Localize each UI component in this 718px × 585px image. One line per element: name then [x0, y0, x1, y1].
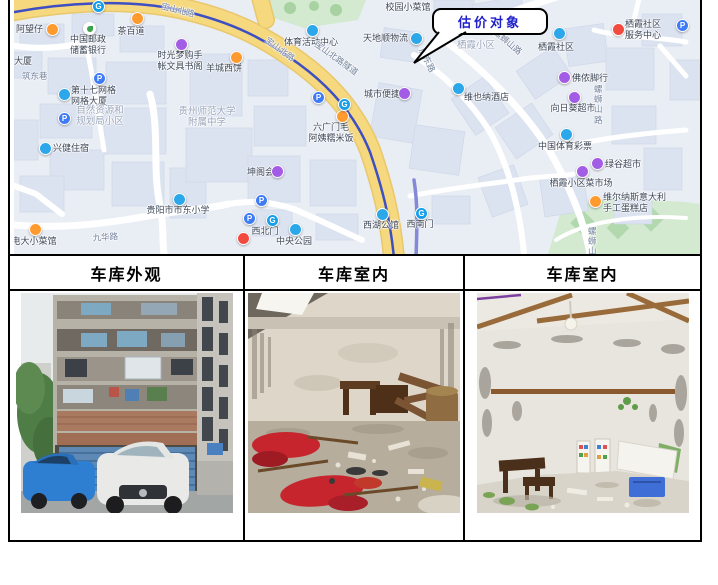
map-label: 服东路 [417, 47, 437, 74]
blue-map-icon [452, 82, 465, 95]
parking-map-icon: P [93, 72, 106, 85]
metro-map-icon: G [92, 0, 105, 13]
header-garage-interior-2: 车库室内 [465, 256, 700, 289]
orange-map-icon [589, 195, 602, 208]
metro-map-icon: G [266, 214, 279, 227]
map-label: 兴健住宿 [53, 143, 89, 154]
blue-map-icon [410, 32, 423, 45]
map-label: 贵阳市市东小学 [146, 205, 209, 216]
blue-map-icon [289, 223, 302, 236]
map-label: 城市便捷 [364, 89, 400, 100]
blue-map-icon [376, 208, 389, 221]
photo-cell-1 [10, 291, 243, 540]
parking-map-icon: P [58, 112, 71, 125]
map-markers: G宝山北路阿望仔茶百道中国邮政 储蓄银行时光梦购手 帐文具书阁羊城西饼大厦筑东巷… [14, 0, 700, 254]
orange-map-icon [336, 110, 349, 123]
map-label: 坤阁会 [247, 167, 274, 178]
photo-cell-3 [465, 291, 700, 540]
map-label: 栖霞小区 [457, 40, 495, 51]
map-label: 栖霞小区菜市场 [549, 178, 612, 189]
map-label: 六广门毛 阿姨糯米饭 [308, 122, 353, 144]
parking-map-icon: P [243, 212, 256, 225]
header-garage-exterior: 车库外观 [10, 256, 243, 289]
header-garage-interior-1: 车库室内 [243, 256, 465, 289]
map-label: 栖霞社区 [538, 42, 574, 53]
parking-map-icon: P [676, 19, 689, 32]
orange-map-icon [46, 23, 59, 36]
map-label: 第十七网格 网格大厦 [71, 85, 116, 107]
map-label: 维尔纳斯意大利 手工蛋糕店 [603, 192, 666, 214]
map-label: 自然资源和 规划局小区 [76, 105, 124, 128]
map-label: 校园小菜馆 [385, 2, 430, 13]
document-page: G宝山北路阿望仔茶百道中国邮政 储蓄银行时光梦购手 帐文具书阁羊城西饼大厦筑东巷… [0, 0, 718, 585]
garage-interior-photo-1[interactable] [248, 293, 460, 513]
blue-map-icon [39, 142, 52, 155]
map-label: 中央公园 [276, 236, 312, 247]
red-map-icon [612, 23, 625, 36]
blue-map-icon [173, 193, 186, 206]
photo-row [10, 291, 700, 540]
table-header-row: 车库外观 车库室内 车库室内 [10, 254, 700, 291]
photo-cell-2 [243, 291, 465, 540]
map-label: 茶百道 [117, 26, 144, 37]
map-label: 螺 蛳 山 [588, 226, 597, 254]
blue-map-icon [553, 27, 566, 40]
map-label: 大厦 [14, 56, 32, 67]
map-label: 向日葵超市 [550, 103, 595, 114]
photo-table: G宝山北路阿望仔茶百道中国邮政 储蓄银行时光梦购手 帐文具书阁羊城西饼大厦筑东巷… [8, 0, 702, 542]
metro-map-icon: G [415, 207, 428, 220]
appraisal-object-callout[interactable]: 估价对象 [432, 8, 548, 35]
map-label: 时光梦购手 帐文具书阁 [157, 50, 202, 72]
map-label: 西南门 [406, 219, 433, 230]
purple-map-icon [271, 165, 284, 178]
map-label: 九华路 [92, 231, 118, 243]
map-label: 维也纳酒店 [464, 92, 509, 103]
map-label: 西湖公馆 [363, 220, 399, 231]
map-label: 中国邮政 储蓄银行 [70, 34, 106, 56]
blue-map-icon [560, 128, 573, 141]
purple-map-icon [558, 71, 571, 84]
map-label: 阿望仔 [16, 24, 43, 35]
parking-map-icon: P [255, 194, 268, 207]
orange-map-icon [131, 12, 144, 25]
parking-map-icon: P [312, 91, 325, 104]
metro-map-icon: G [338, 98, 351, 111]
red-map-icon [237, 232, 250, 245]
map-label: 西北门 [251, 226, 278, 237]
map-label: 中国体育彩票 [538, 141, 592, 152]
map-label: 电大小菜馆 [14, 236, 57, 247]
map-label: 贵州师范大学 附属中学 [178, 106, 235, 129]
map-row: G宝山北路阿望仔茶百道中国邮政 储蓄银行时光梦购手 帐文具书阁羊城西饼大厦筑东巷… [10, 0, 700, 254]
purple-map-icon [175, 38, 188, 51]
purple-map-icon [568, 91, 581, 104]
garage-interior-photo-2[interactable] [477, 293, 689, 513]
map-label: 绿谷超市 [605, 159, 641, 170]
purple-map-icon [398, 87, 411, 100]
purple-map-icon [591, 157, 604, 170]
map-label: 天地顺物流 [363, 33, 408, 44]
purple-map-icon [576, 165, 589, 178]
blue-map-icon [306, 24, 319, 37]
orange-map-icon [230, 51, 243, 64]
garage-exterior-photo[interactable] [16, 293, 238, 513]
blue-map-icon [58, 88, 71, 101]
map-label: 佛侬脚行 [572, 73, 608, 84]
map-label: 筑东巷 [22, 71, 48, 81]
orange-map-icon [29, 223, 42, 236]
leaf-map-icon [83, 22, 96, 35]
map-label: 栖霞社区 服务中心 [625, 19, 661, 41]
map-label: 羊城西饼 [206, 63, 242, 74]
map-label: 螺 蛳 山 路 [594, 84, 603, 125]
map-label: 宝山北路 [160, 1, 195, 19]
location-map-image[interactable]: G宝山北路阿望仔茶百道中国邮政 储蓄银行时光梦购手 帐文具书阁羊城西饼大厦筑东巷… [14, 0, 700, 254]
